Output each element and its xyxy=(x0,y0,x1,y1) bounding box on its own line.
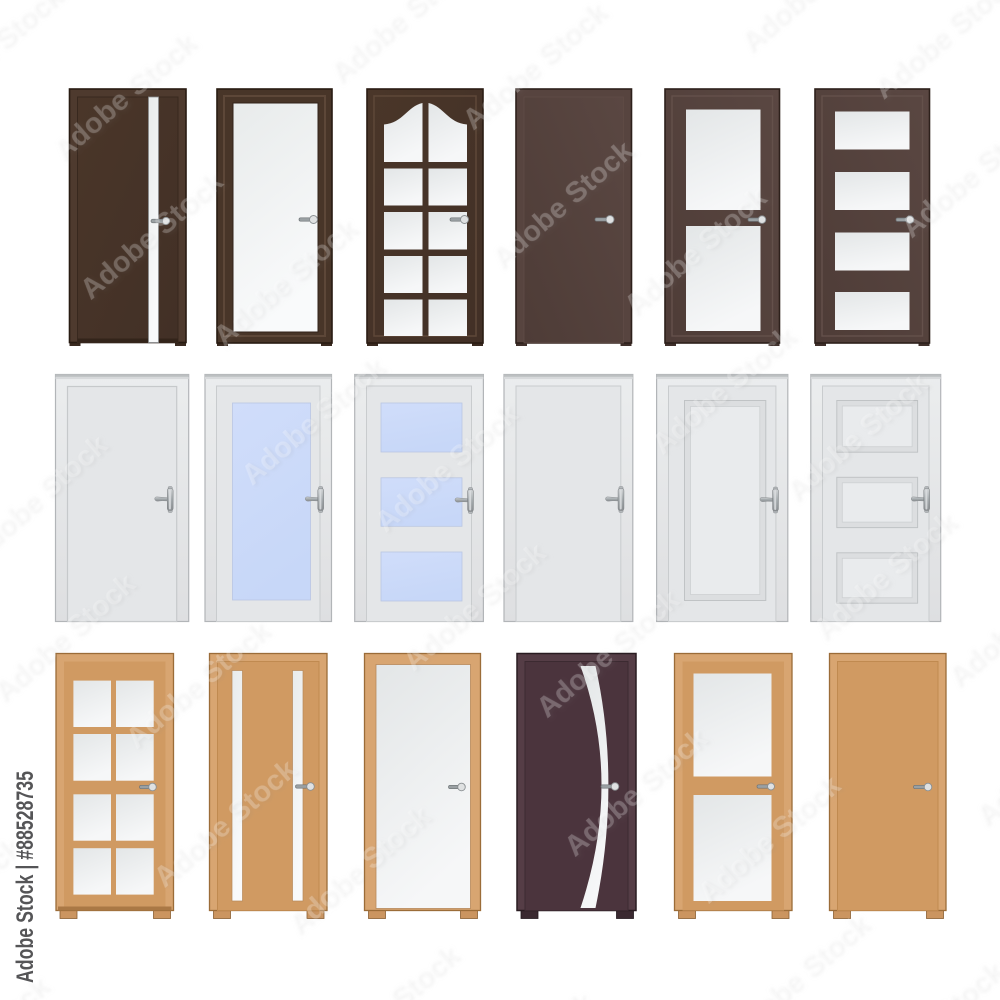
svg-text:Adobe Stock | #88528735: Adobe Stock | #88528735 xyxy=(12,771,39,983)
